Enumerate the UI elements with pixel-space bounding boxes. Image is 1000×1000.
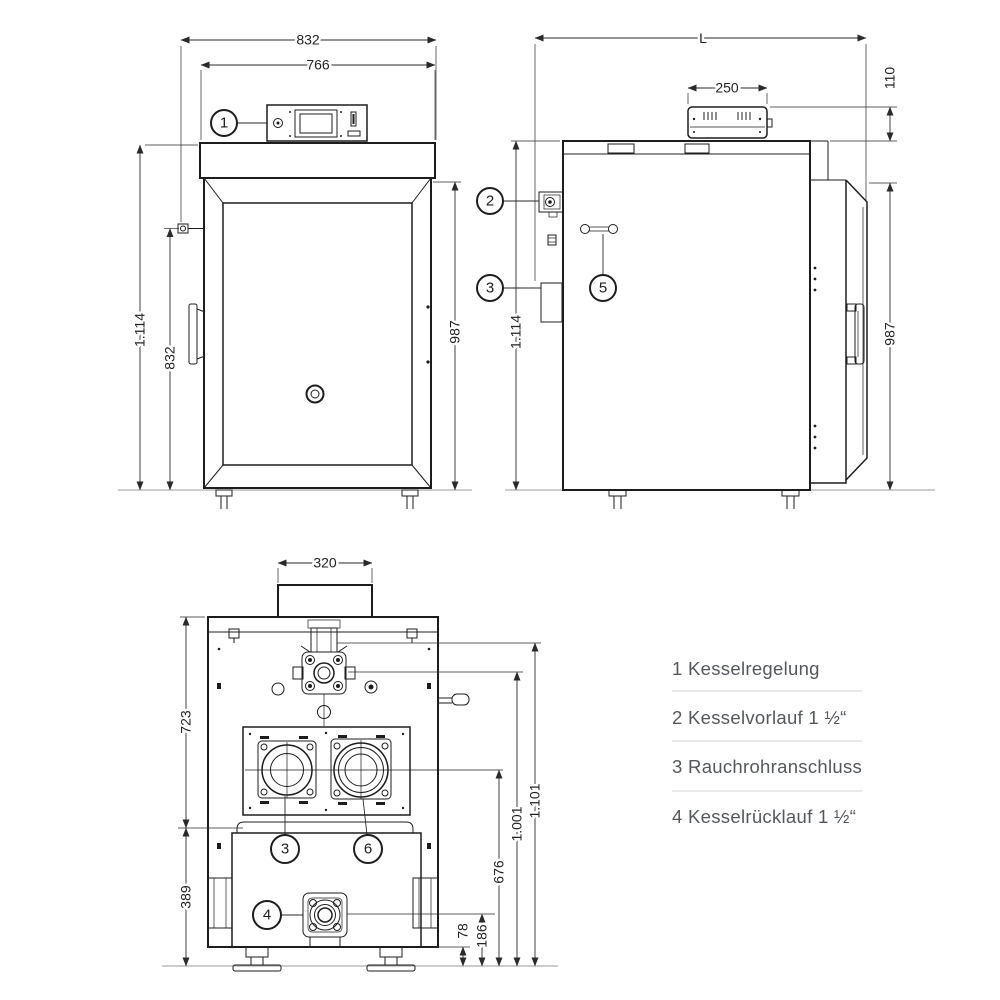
rear-return-connection [303, 893, 347, 947]
rear-ash-lever [438, 694, 469, 705]
callout-1-kesselregelung: 1 [211, 110, 267, 136]
side-door-profile [811, 180, 867, 483]
legend-item-2: 2 Kesselvorlauf 1 ½“ [672, 707, 847, 728]
callout-3-rauchrohr-side: 3 [477, 275, 541, 301]
rear-flue-connection [258, 741, 316, 798]
dim-front-total-height: 1.114 [132, 313, 148, 347]
rear-lower-box [208, 822, 438, 971]
front-feet [216, 490, 418, 509]
rear-cleanout-connection [331, 739, 391, 799]
legend-item-1: 1 Kesselregelung [672, 658, 820, 679]
callout-6-cleanout: 6 [354, 799, 382, 863]
front-view: 1 832 766 1.114 832 987 [118, 32, 472, 510]
side-door-handle [847, 304, 864, 364]
technical-drawing-svg: 1 832 766 1.114 832 987 [0, 0, 1000, 1000]
side-view: 2 3 5 L 250 110 1.11 [477, 30, 935, 509]
callout-3-rauchrohr-rear: 3 [271, 796, 299, 863]
rear-feet [233, 947, 415, 971]
dim-front-body-width: 766 [306, 57, 330, 73]
front-control-panel [267, 105, 367, 141]
dim-rear-flue-width: 320 [313, 555, 337, 571]
side-boiler-body [563, 141, 846, 509]
hinge-dot [426, 305, 429, 308]
dim-front-total-width: 832 [296, 32, 320, 48]
rear-view: 3 6 4 320 723 389 [162, 555, 558, 972]
dim-front-fitting-height: 832 [162, 346, 178, 370]
legend: 1 Kesselregelung 2 Kesselvorlauf 1 ½“ 3 … [672, 658, 862, 827]
side-cleaning-lever [581, 225, 618, 234]
dim-rear-return-height: 186 [474, 924, 490, 948]
dim-rear-valve-height: 1.001 [509, 806, 525, 841]
panel-switch [348, 131, 360, 136]
boiler-dimension-drawing: 1 832 766 1.114 832 987 [0, 0, 1000, 1000]
callout-5-number: 5 [599, 280, 607, 297]
rear-port-left [272, 683, 284, 695]
front-door [189, 178, 431, 488]
dim-side-length: L [699, 30, 707, 46]
rear-valve-assembly [293, 620, 355, 726]
dim-rear-total-height: 1.101 [527, 783, 543, 818]
dim-rear-upper-height: 723 [178, 710, 194, 734]
callout-4-number: 4 [263, 907, 271, 924]
legend-item-4: 4 Kesselrücklauf 1 ½“ [672, 806, 856, 827]
rear-flue-duct [278, 585, 372, 617]
callout-5-lever: 5 [590, 234, 616, 301]
legend-item-3: 3 Rauchrohranschluss [672, 756, 862, 777]
side-control-panel [688, 107, 772, 138]
side-feet [609, 490, 799, 509]
panel-vent-grille [704, 112, 750, 120]
callout-6-number: 6 [364, 841, 372, 858]
front-boiler-body [178, 143, 435, 509]
dim-side-total-height: 1.114 [508, 315, 524, 349]
hinge-dot [426, 360, 429, 363]
callout-4-kesselruecklauf: 4 [253, 901, 303, 929]
callout-2-kesselvorlauf: 2 [477, 188, 539, 214]
side-dimensions: L 250 110 1.114 987 [508, 30, 898, 490]
dim-front-door-height: 987 [447, 320, 463, 344]
callout-2-number: 2 [486, 193, 494, 210]
door-handle [189, 304, 205, 364]
side-flow-fitting [539, 192, 563, 245]
dim-side-panel-width: 250 [715, 80, 739, 96]
dim-rear-base-height: 78 [455, 923, 471, 939]
dim-rear-flue-center-height: 676 [491, 860, 507, 884]
door-knob [307, 386, 324, 403]
callout-3-number: 3 [281, 841, 289, 858]
callout-1-number: 1 [220, 115, 228, 132]
dim-rear-lower-height: 389 [178, 885, 194, 909]
dim-side-panel-height: 110 [882, 67, 898, 90]
callout-3-number: 3 [486, 280, 494, 297]
dim-side-door-height: 987 [882, 322, 898, 346]
side-flue-outlet-box [541, 283, 562, 322]
rear-flange-plate [243, 727, 503, 815]
front-dimensions: 832 766 1.114 832 987 [132, 32, 463, 491]
rear-port-right [365, 681, 377, 693]
front-side-fitting [178, 224, 204, 233]
